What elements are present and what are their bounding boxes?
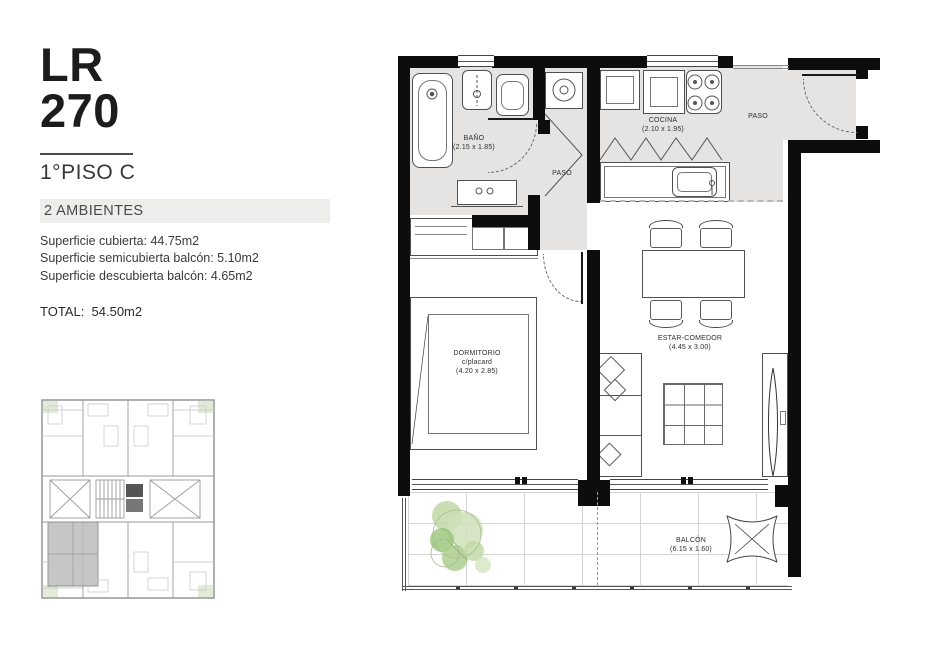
- kitchen-living-boundary: [600, 200, 783, 202]
- dining-table-icon: [642, 250, 745, 298]
- room-dim: (2.15 x 1.85): [435, 143, 513, 152]
- balcony-divider-line: [597, 492, 598, 585]
- chair-icon: [700, 300, 732, 320]
- label-estar: ESTAR-COMEDOR (4.45 x 3.00): [633, 334, 747, 352]
- room-dim: (6.15 x 1.60): [639, 545, 743, 554]
- chair-icon: [650, 300, 682, 320]
- room-dim: (2.10 x 1.95): [618, 125, 708, 134]
- label-cocina: COCINA (2.10 x 1.95): [618, 116, 708, 134]
- wall-segment: [788, 140, 801, 577]
- room-sub: c/placard: [427, 358, 527, 367]
- toilet-bowl: [501, 81, 524, 110]
- mullion-mark: [688, 477, 693, 484]
- room-name: COCINA: [618, 116, 708, 125]
- chair-icon: [650, 228, 682, 248]
- wall-segment: [472, 215, 538, 227]
- label-balcon: BALCÓN (6.15 x 1.60): [639, 536, 743, 554]
- label-dormitorio: DORMITORIO c/placard (4.20 x 2.85): [427, 349, 527, 376]
- unit-code-line1: LR: [40, 42, 120, 88]
- bedroom-door-swing: [543, 254, 581, 302]
- label-paso-entry: PASO: [728, 112, 788, 121]
- rug-icon: [663, 383, 723, 445]
- room-name: BAÑO: [435, 134, 513, 143]
- label-bano: BAÑO (2.15 x 1.85): [435, 134, 513, 152]
- closet-track-line: [410, 258, 538, 259]
- kitchen-window: [647, 55, 718, 67]
- total-area: TOTAL: 54.50m2: [40, 304, 142, 319]
- unit-code-line2: 270: [40, 88, 120, 134]
- wall-segment: [587, 250, 600, 480]
- tv-bracket: [780, 411, 786, 425]
- wall-segment: [492, 56, 647, 68]
- divider-line: [40, 153, 133, 155]
- wall-pillar: [775, 485, 788, 507]
- washing-machine-icon: [545, 72, 583, 109]
- floor-plan: BAÑO (2.15 x 1.85) COCINA (2.10 x 1.95) …: [395, 48, 895, 640]
- surface-semicovered: Superficie semicubierta balcón: 5.10m2: [40, 250, 259, 267]
- surface-list: Superficie cubierta: 44.75m2 Superficie …: [40, 233, 259, 285]
- wall-segment: [587, 63, 600, 203]
- wall-segment: [533, 56, 545, 120]
- wall-segment: [718, 56, 733, 68]
- entry-door-leaf: [802, 74, 858, 76]
- closet-door-panel: [472, 227, 504, 250]
- hall-high-window: [733, 65, 789, 69]
- room-dim: (4.45 x 3.00): [633, 343, 747, 352]
- vanity-counter-line: [451, 206, 523, 207]
- wall-segment: [398, 56, 410, 496]
- balcony-rail-left: [402, 498, 406, 591]
- chair-icon: [700, 228, 732, 248]
- closet-shelf-line2: [415, 234, 467, 235]
- bidet-icon: [462, 70, 492, 110]
- surface-covered: Superficie cubierta: 44.75m2: [40, 233, 259, 250]
- door-jamb: [538, 120, 550, 134]
- room-name: DORMITORIO: [427, 349, 527, 358]
- unit-type-badge: 2 AMBIENTES: [40, 199, 330, 223]
- door-jamb: [856, 126, 868, 139]
- bedroom-door-leaf: [581, 252, 583, 304]
- sofa-seam: [597, 395, 642, 396]
- oven-inner: [650, 77, 678, 107]
- wall-pillar: [578, 480, 610, 506]
- kitchen-sink-inner: [677, 172, 712, 192]
- wall-segment: [398, 56, 460, 68]
- wall-segment: [788, 140, 880, 153]
- stove-icon: [686, 70, 722, 114]
- mullion-mark: [522, 477, 527, 484]
- unit-code: LR 270: [40, 42, 120, 134]
- closet-shelf-line: [415, 226, 467, 227]
- bathroom-window: [458, 55, 494, 67]
- mullion-mark: [515, 477, 520, 484]
- room-dim: (4.20 x 2.85): [427, 367, 527, 376]
- surface-uncovered: Superficie descubierta balcón: 4.65m2: [40, 268, 259, 285]
- sofa-seam2: [597, 435, 642, 436]
- fridge-inner: [606, 76, 634, 104]
- room-name: BALCÓN: [639, 536, 743, 545]
- balcony-rail-bottom: [402, 586, 792, 590]
- mullion-mark: [681, 477, 686, 484]
- room-name: ESTAR-COMEDOR: [633, 334, 747, 343]
- bedroom-balcony-door: [412, 479, 578, 490]
- vanity-icon: [457, 180, 517, 205]
- floorplan-sheet: LR 270 1°PISO C 2 AMBIENTES Superficie c…: [0, 0, 947, 670]
- label-paso-center: PASO: [537, 169, 587, 178]
- wall-segment: [788, 58, 880, 70]
- floor-label: 1°PISO C: [40, 161, 135, 185]
- key-plan: [38, 396, 218, 602]
- bathroom-door-leaf: [488, 118, 534, 120]
